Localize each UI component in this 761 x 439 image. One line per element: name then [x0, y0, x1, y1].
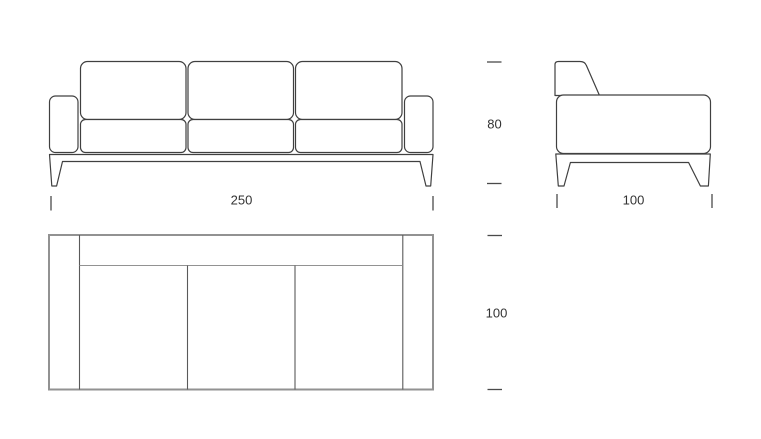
- dimension-front-width: 250: [51, 193, 433, 211]
- top-view: [49, 235, 433, 390]
- front-view: [50, 62, 434, 187]
- dimension-label-side-depth: 100: [623, 193, 645, 208]
- side-view: [555, 62, 711, 187]
- front-armrest-right: [405, 96, 434, 153]
- drawing-svg: 250 100 80 100: [0, 0, 761, 439]
- dimension-height: 80: [487, 62, 502, 184]
- dimension-top-depth: 100: [486, 236, 508, 390]
- front-back-cushion-3: [296, 62, 403, 120]
- side-body: [557, 95, 711, 154]
- front-seat-cushion-3: [296, 120, 403, 153]
- dimension-side-depth: 100: [557, 193, 712, 209]
- sofa-technical-drawing: 250 100 80 100: [0, 0, 761, 439]
- front-armrest-left: [50, 96, 79, 153]
- front-seat-cushion-2: [188, 120, 294, 153]
- dimension-label-top-depth: 100: [486, 306, 508, 321]
- front-back-cushion-1: [81, 62, 187, 120]
- front-seat-cushion-1: [81, 120, 187, 153]
- dimension-label-height: 80: [487, 117, 501, 132]
- side-backrest: [555, 62, 600, 96]
- dimension-label-front-width: 250: [231, 193, 253, 208]
- top-outline: [49, 235, 433, 390]
- side-base-and-legs: [556, 154, 711, 186]
- front-base-and-legs: [50, 155, 434, 187]
- front-back-cushion-2: [188, 62, 294, 120]
